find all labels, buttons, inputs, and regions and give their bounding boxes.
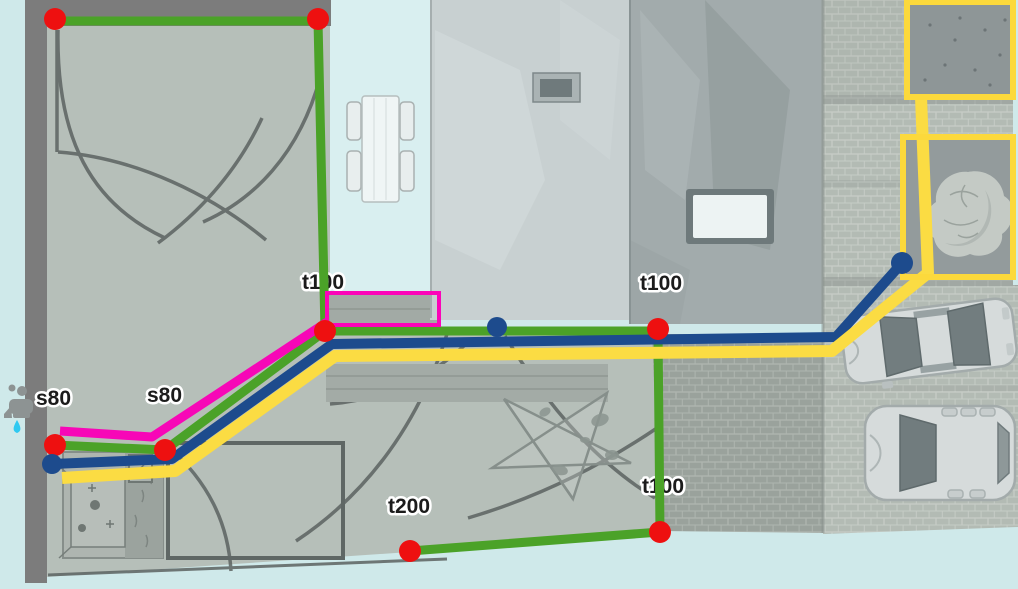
label-s80-right[interactable]: s80 [147, 384, 182, 407]
red-node[interactable] [649, 521, 671, 543]
parked-car-2 [865, 406, 1015, 500]
garden-plan-canvas: t100t100t100t200s80s80 [0, 0, 1018, 589]
red-node[interactable] [44, 434, 66, 456]
paver-path [652, 334, 823, 533]
blue-node[interactable] [42, 454, 62, 474]
label-t100-roof[interactable]: t100 [640, 272, 682, 295]
red-node[interactable] [647, 318, 669, 340]
red-node[interactable] [314, 320, 336, 342]
blue-node[interactable] [487, 317, 507, 337]
house-roof [430, 0, 823, 324]
blue-node[interactable] [891, 252, 913, 274]
left-wall [25, 0, 47, 583]
scenery [4, 0, 1018, 583]
dining-table [362, 96, 399, 202]
red-node[interactable] [44, 8, 66, 30]
paved-patch [907, 2, 1013, 97]
red-node[interactable] [399, 540, 421, 562]
label-s80-left[interactable]: s80 [36, 387, 71, 410]
roof-window [686, 189, 774, 244]
skylight [533, 73, 580, 102]
red-node[interactable] [154, 439, 176, 461]
red-node[interactable] [307, 8, 329, 30]
label-t200[interactable]: t200 [388, 495, 430, 518]
